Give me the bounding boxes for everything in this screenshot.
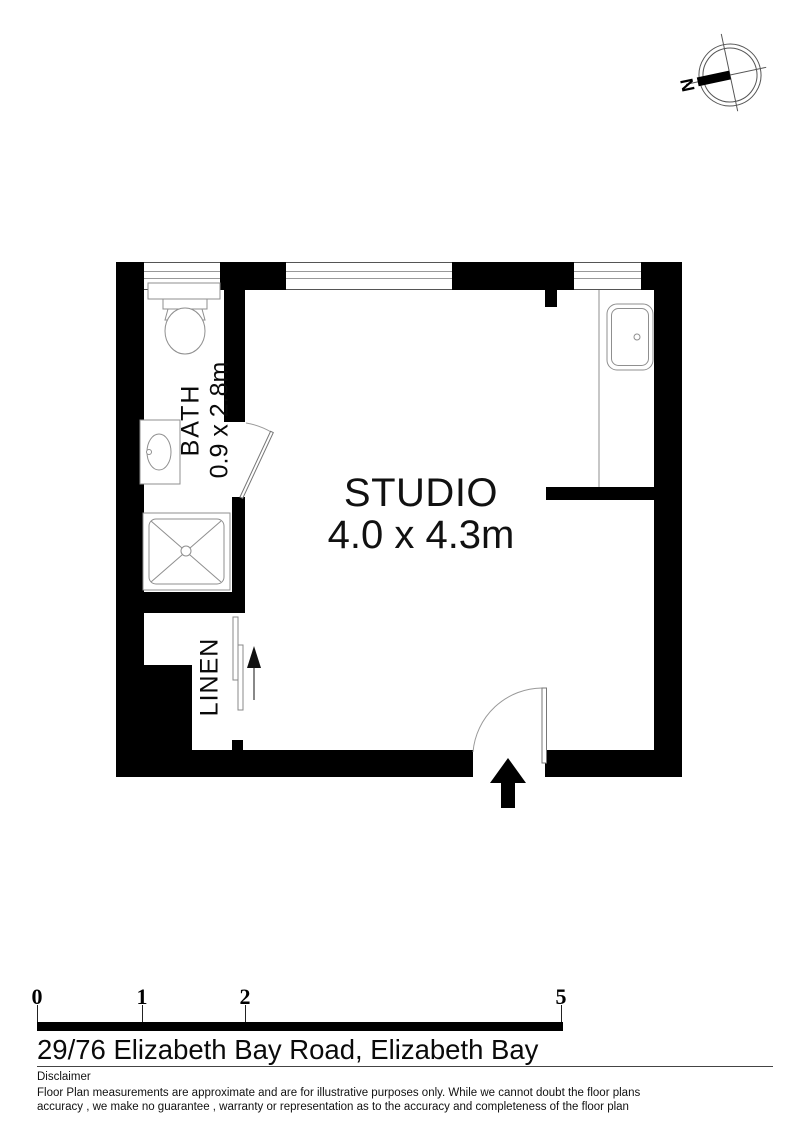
studio-label-block: STUDIO 4.0 x 4.3m: [328, 472, 515, 556]
divider-rule: [37, 1066, 773, 1067]
compass-needle: [697, 71, 731, 87]
compass-north-label: N: [676, 77, 698, 94]
linen-arrow-icon: [247, 646, 261, 700]
entry-door: [473, 688, 547, 763]
wall-top-segment-1: [220, 262, 286, 290]
room-label-bath: BATH: [177, 384, 206, 457]
address-title: 29/76 Elizabeth Bay Road, Elizabeth Bay: [37, 1034, 538, 1066]
linen-sliding-doors: [233, 617, 243, 710]
scale-bar: [37, 1022, 563, 1031]
wall-top-corner-right: [641, 262, 682, 290]
window-bath: [144, 262, 220, 290]
wall-kitchen-stub: [545, 290, 557, 307]
floor-plan-page: N STUDIO 4.0 x 4.3m BATH 0.9 x 2.8m LINE…: [0, 0, 800, 1131]
window-studio: [286, 262, 452, 290]
bath-door: [240, 423, 273, 498]
disclaimer-line-2: accuracy , we make no guarantee , warran…: [37, 1100, 640, 1114]
room-dimensions-studio: 4.0 x 4.3m: [328, 514, 515, 556]
compass-icon: N: [668, 26, 773, 122]
scale-tick-5: [561, 1005, 562, 1022]
room-dimensions-bath: 0.9 x 2.8m: [206, 362, 235, 479]
wall-top-segment-2: [452, 262, 574, 290]
room-label-linen: LINEN: [196, 638, 225, 717]
wall-below-shower: [116, 592, 245, 613]
scale-tick-0: [37, 1005, 38, 1022]
basin-icon: [140, 420, 180, 484]
wall-kitchen-bench: [546, 487, 660, 500]
room-label-studio: STUDIO: [328, 472, 515, 514]
entry-arrow-icon: [490, 758, 526, 808]
disclaimer-block: Disclaimer Floor Plan measurements are a…: [37, 1070, 640, 1114]
scale-tick-2: [245, 1005, 246, 1022]
kitchen-sink-icon: [607, 304, 653, 370]
window-kitchen: [574, 262, 641, 290]
toilet-icon: [148, 283, 220, 354]
shower-icon: [143, 513, 230, 590]
wall-right: [654, 262, 682, 777]
wall-linen-stub: [232, 740, 243, 750]
disclaimer-line-1: Floor Plan measurements are approximate …: [37, 1086, 640, 1100]
disclaimer-heading: Disclaimer: [37, 1070, 640, 1084]
wall-bottom-right-of-door: [545, 750, 682, 777]
wall-corner-mass: [116, 665, 192, 777]
scale-tick-1: [142, 1005, 143, 1022]
